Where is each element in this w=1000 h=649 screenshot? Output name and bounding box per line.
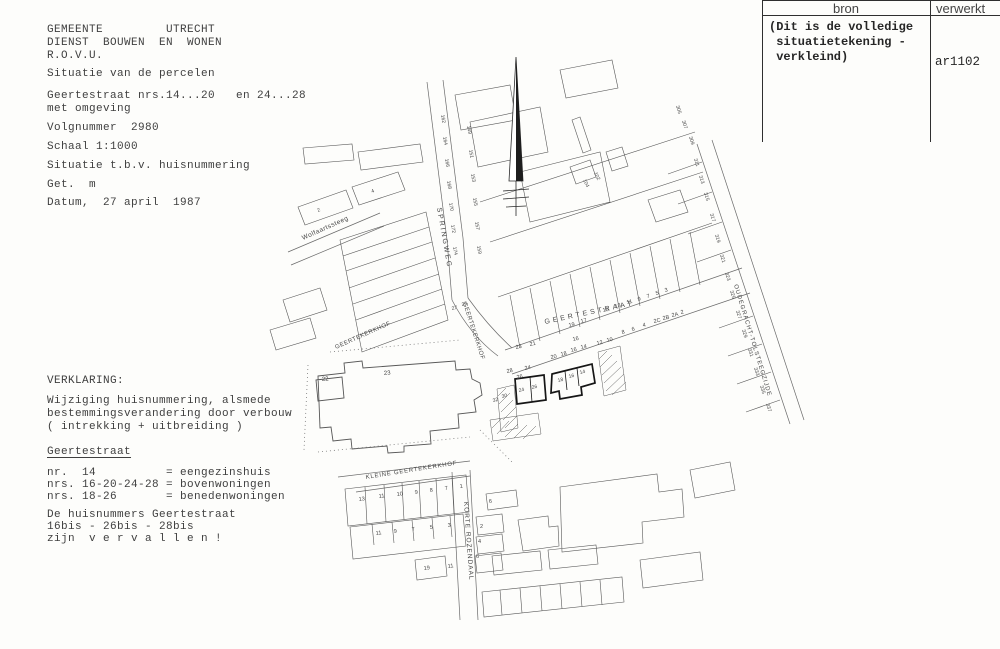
parcel-number-label: 307 <box>680 120 688 130</box>
situation-map: SPRINGWEGGEERTEKERKHOFGEERTEKERKHOFGEERT… <box>0 0 1000 649</box>
parcel-number-label: 2 <box>680 309 684 316</box>
parcel-number-label: 3 <box>664 287 668 294</box>
parcel-number-label: 9 <box>393 529 397 535</box>
parcel-number-label: 16 <box>570 347 577 354</box>
parcel-number-label: 4 <box>642 322 646 329</box>
parcel-number-label: 19 <box>568 322 575 329</box>
parcel-number-label: 6 <box>489 499 493 505</box>
parcel-number-label: 16 <box>568 373 575 380</box>
geertekerk-church-outline <box>316 361 482 453</box>
parcel-number-label: 24 <box>518 387 525 394</box>
parcel-number-label: 337 <box>764 403 772 413</box>
parcel-number-label: 321 <box>718 254 726 264</box>
parcel-number-label: 21 <box>529 341 536 348</box>
parcel-number-label: 7 <box>411 527 415 533</box>
parcel-number-label: 22 <box>322 376 330 383</box>
parcel-number-label: 23 <box>515 344 522 351</box>
parcel-number-label: 11 <box>626 299 633 306</box>
parcel-number-label: 315 <box>702 192 710 202</box>
street-name-label: SPRINGWEG <box>435 207 453 269</box>
parcel-number-label: 170 <box>447 202 454 211</box>
parcel-number-label: 8 <box>429 488 433 494</box>
parcel-number-label: 319 <box>713 234 721 244</box>
parcel-number-label: 9 <box>637 296 641 303</box>
parcel-number-label: 6 <box>476 554 479 560</box>
parcel-number-label: 172 <box>449 224 456 233</box>
parcel-number-label: 333 <box>752 367 760 377</box>
parcel-number-label: 166 <box>443 158 450 167</box>
parcel-number-label: 1 <box>459 484 463 490</box>
parcel-number-label: 155 <box>471 197 478 206</box>
parcel-number-label: 305 <box>674 105 682 115</box>
street-name-label: GEERTEKERKHOF <box>461 302 485 361</box>
parcel-number-label: 8 <box>621 329 625 336</box>
parcel-number-label: 23 <box>384 370 392 377</box>
parcel-number-label: 102 <box>592 171 601 181</box>
street-name-label: GEERTESTRAAT <box>544 300 635 326</box>
parcel-number-label: 327 <box>734 310 742 320</box>
street-name-label: GEERTEKERKHOF <box>334 321 391 351</box>
parcel-number-label: 2 <box>480 524 483 530</box>
parcel-number-label: 9 <box>414 490 418 496</box>
parcel-number-label: 13 <box>358 496 365 503</box>
parcel-number-label: 6 <box>631 326 635 333</box>
parcel-number-label: 4 <box>371 188 376 195</box>
street-name-label: KLEINE GEERTEKERKHOF <box>365 461 457 481</box>
parcel-number-label: 168 <box>445 180 452 189</box>
parcel-number-label: 14 <box>579 369 586 376</box>
parcel-number-label: 309 <box>687 136 695 146</box>
parcel-number-label: 10 <box>396 491 403 498</box>
hatched-parcels <box>490 346 626 441</box>
parcel-number-label: 164 <box>441 136 448 145</box>
parcel-number-label: 4 <box>478 539 481 545</box>
parcel-number-label: 311 <box>692 158 700 168</box>
north-arrow-icon <box>503 57 529 216</box>
parcel-number-label: 11 <box>375 530 381 537</box>
parcel-number-label: 17 <box>580 318 587 325</box>
parcel-number-label: 18 <box>560 351 567 358</box>
parcel-number-label: 26 <box>516 374 523 381</box>
buildings-north-center <box>455 60 712 348</box>
parcel-number-label: 27 <box>451 305 458 312</box>
parcel-number-label: 28 <box>506 368 513 375</box>
street-name-label: Wolfaartssteeg <box>301 215 350 242</box>
parcel-number-label: 13 <box>614 303 621 310</box>
parcel-number-label: 313 <box>697 175 705 185</box>
parcel-number-label: 11 <box>378 493 384 500</box>
parcel-number-label: 153 <box>469 173 476 182</box>
parcel-number-label: 30 <box>501 393 508 400</box>
parcel-number-label: 7 <box>646 293 650 300</box>
parcel-number-label: 12 <box>596 340 603 347</box>
parcel-number-label: 18 <box>557 377 564 384</box>
street-lines <box>288 80 804 620</box>
parcel-number-label: 10 <box>606 337 613 344</box>
parcel-number-label: 2 <box>317 207 322 214</box>
parcel-number-label: 16 <box>572 336 579 343</box>
parcel-number-label: 20 <box>550 354 557 361</box>
parcel-number-label: 19 <box>423 565 430 572</box>
street-name-label: OUDEGRACHT-TOLSTEEGZIJDE <box>732 284 772 398</box>
parcel-number-label: 162 <box>439 114 446 123</box>
scanned-sheet: GEMEENTE UTRECHT DIENST BOUWEN EN WONEN … <box>0 0 1000 649</box>
building-outlines <box>270 60 780 617</box>
parcel-number-label: 2A <box>671 312 679 319</box>
parcel-number-label: 151 <box>467 149 474 158</box>
parcel-number-label: 104 <box>581 178 590 188</box>
parcel-number-label: 24 <box>524 365 531 372</box>
parcel-number-label: 11 <box>447 563 453 570</box>
parcel-number-label: 7 <box>444 486 448 492</box>
parcel-number-label: 159 <box>475 245 482 254</box>
parcel-number-label: 174 <box>451 246 458 255</box>
parcel-number-label: 26 <box>531 384 538 391</box>
parcel-number-label: 15 <box>602 307 609 314</box>
parcel-number-label: 149 <box>465 125 472 134</box>
parcel-number-label: 157 <box>473 221 480 230</box>
parcel-number-label: 331 <box>746 348 754 358</box>
parcel-number-label: 14 <box>580 344 587 351</box>
parcel-number-label: 323 <box>723 272 731 282</box>
parcel-number-label: 317 <box>708 213 716 223</box>
parcel-number-label: 329 <box>740 329 748 339</box>
